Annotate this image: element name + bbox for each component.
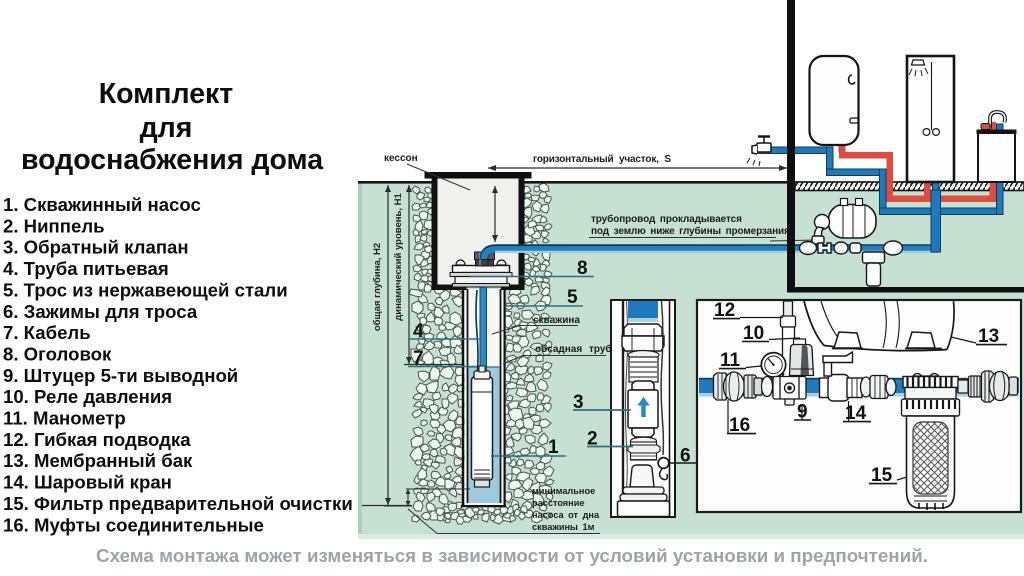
svg-text:8. Оголовок: 8. Оголовок xyxy=(3,344,112,365)
svg-text:6. Зажимы для троса: 6. Зажимы для троса xyxy=(3,301,198,322)
svg-text:для: для xyxy=(140,112,193,144)
svg-text:3. Обратный клапан: 3. Обратный клапан xyxy=(3,237,189,258)
svg-text:11. Манометр: 11. Манометр xyxy=(3,408,126,429)
svg-text:скважины 1м: скважины 1м xyxy=(532,522,595,532)
svg-text:3: 3 xyxy=(573,392,584,413)
svg-text:5. Трос из нержавеющей стали: 5. Трос из нержавеющей стали xyxy=(3,279,288,300)
svg-text:Комплект: Комплект xyxy=(99,78,234,110)
svg-text:10. Реле давления: 10. Реле давления xyxy=(3,386,172,407)
svg-text:1: 1 xyxy=(548,437,559,458)
svg-text:4: 4 xyxy=(413,321,424,342)
svg-text:9. Штуцер 5-ти выводной: 9. Штуцер 5-ти выводной xyxy=(3,365,238,386)
svg-text:5: 5 xyxy=(567,287,578,308)
svg-text:14. Шаровый кран: 14. Шаровый кран xyxy=(3,472,172,493)
svg-text:трубопровод прокладывается: трубопровод прокладывается xyxy=(591,213,742,225)
svg-text:под землю ниже глубины промерз: под землю ниже глубины промерзания xyxy=(591,225,790,237)
svg-text:Схема монтажа может изменяться: Схема монтажа может изменяться в зависим… xyxy=(96,545,928,566)
svg-text:13. Мембранный бак: 13. Мембранный бак xyxy=(3,450,193,471)
svg-text:минимальное: минимальное xyxy=(532,486,595,496)
svg-text:кессон: кессон xyxy=(384,153,418,164)
svg-text:2: 2 xyxy=(587,429,598,450)
svg-text:4. Труба питьевая: 4. Труба питьевая xyxy=(3,258,169,279)
svg-text:15. Фильтр предварительной очи: 15. Фильтр предварительной очистки xyxy=(3,493,353,514)
svg-text:8: 8 xyxy=(577,258,588,279)
svg-text:общая глубина, Н2: общая глубина, Н2 xyxy=(372,243,383,331)
svg-text:насоса от дна: насоса от дна xyxy=(532,510,600,520)
svg-text:7: 7 xyxy=(413,348,424,369)
svg-text:расстояние: расстояние xyxy=(532,498,584,508)
svg-text:обсадная труба: обсадная труба xyxy=(535,343,618,355)
svg-text:горизонтальный участок, S: горизонтальный участок, S xyxy=(533,154,671,165)
svg-text:2. Ниппель: 2. Ниппель xyxy=(3,215,105,236)
svg-text:скважина: скважина xyxy=(533,315,580,326)
svg-text:16. Муфты соединительные: 16. Муфты соединительные xyxy=(3,514,264,535)
svg-text:динамический уровень, Н1: динамический уровень, Н1 xyxy=(393,193,404,321)
svg-text:1. Скважинный насос: 1. Скважинный насос xyxy=(3,194,201,215)
svg-text:водоснабжения дома: водоснабжения дома xyxy=(21,144,324,176)
svg-text:6: 6 xyxy=(680,446,691,467)
svg-text:7. Кабель: 7. Кабель xyxy=(3,322,91,343)
svg-text:12. Гибкая подводка: 12. Гибкая подводка xyxy=(3,429,191,450)
